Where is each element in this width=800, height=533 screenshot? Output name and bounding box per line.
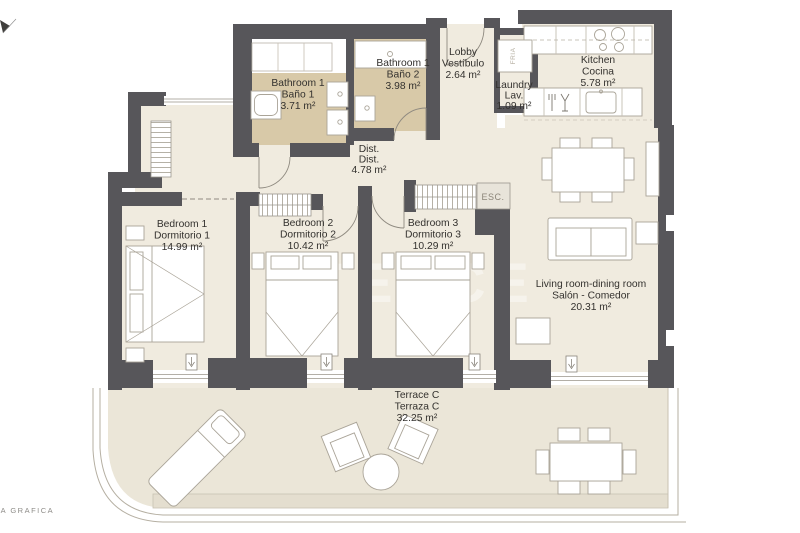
bedroom2-name-es: Dormitorio 2: [280, 230, 336, 241]
arrow-bedroom2: [321, 354, 332, 370]
floor-plan: TEKCE: [0, 0, 800, 533]
bathtub: [251, 91, 281, 119]
armchair-living: [516, 318, 550, 344]
bedroom2-terrace-window: [307, 370, 344, 383]
living-name-en: Living room-dining room: [536, 279, 646, 290]
toilet: [355, 96, 375, 121]
bedroom1-name-en: Bedroom 1: [157, 219, 208, 230]
kitchen-counter-bottom: [524, 88, 642, 116]
compass-fragment-icon: [0, 19, 16, 33]
bedroom2-name-en: Bedroom 2: [283, 218, 334, 229]
bathroom1-name-es: Baño 1: [282, 90, 315, 101]
bedroom2-label: Bedroom 2 Dormitorio 2 10.42 m²: [280, 218, 336, 252]
kitchen-name-en: Kitchen: [581, 55, 616, 66]
living-name-es: Salón - Comedor: [552, 291, 630, 302]
terrace-paving-strip: [153, 494, 668, 508]
hall-closet: [151, 121, 171, 177]
dist-name-en: Dist.: [359, 144, 380, 155]
bathroom2-name-en: Bathroom 1: [376, 58, 430, 69]
sofa: [548, 218, 632, 260]
lobby-area: 2.64 m²: [446, 70, 481, 81]
kitchen-name-es: Cocina: [582, 67, 614, 78]
laundry-name-es: Lav.: [505, 91, 524, 102]
bedroom3-name-en: Bedroom 3: [408, 218, 459, 229]
arrow-living: [566, 356, 577, 372]
bedroom3-terrace-window: [463, 370, 496, 383]
laundry-name-en: Laundry: [495, 80, 533, 91]
kitchen-area: 5.78 m²: [581, 78, 616, 89]
bedroom3-label: Bedroom 3 Dormitorio 3 10.29 m²: [405, 218, 461, 252]
floor-plan-page: TEKCE: [0, 0, 800, 533]
bedroom3-wardrobe: [415, 185, 476, 209]
bathroom1-area: 3.71 m²: [281, 101, 316, 112]
living-terrace-window: [551, 372, 648, 385]
terrace-name-es: Terraza C: [395, 402, 440, 413]
credit-text: LA GRAFICA: [0, 506, 54, 515]
dist-area: 4.78 m²: [352, 165, 387, 176]
terrace-round-table: [363, 454, 399, 490]
bedroom3-name-es: Dormitorio 3: [405, 230, 461, 241]
hall-window: [164, 96, 233, 105]
bedroom3-area: 10.29 m²: [413, 241, 454, 252]
stairs-label: ESC.: [481, 192, 504, 202]
terrace-area: 32.25 m²: [397, 413, 438, 424]
bedroom2-wardrobe: [259, 194, 311, 216]
stair-landing: ESC.: [477, 183, 510, 209]
bedroom3-bed: [382, 252, 484, 356]
bathroom1-name-en: Bathroom 1: [271, 78, 325, 89]
bedroom1-label: Bedroom 1 Dormitorio 1 14.99 m²: [154, 219, 210, 253]
terrace-label: Terrace C Terraza C 32.25 m²: [395, 390, 440, 424]
living-area: 20.31 m²: [571, 302, 612, 313]
bedroom1-terrace-window: [153, 370, 208, 383]
fridge-label: FRIA: [510, 47, 517, 64]
bedroom2-area: 10.42 m²: [288, 241, 329, 252]
terrace-name-en: Terrace C: [395, 390, 440, 401]
bathroom2-name-es: Baño 2: [387, 70, 420, 81]
arrow-bedroom1: [186, 354, 197, 370]
dist-name-es: Dist.: [359, 155, 380, 166]
tv-cabinet: [646, 142, 659, 196]
side-table: [636, 222, 658, 244]
laundry-area: 1.09 m²: [497, 101, 532, 112]
bedroom1-name-es: Dormitorio 1: [154, 231, 210, 242]
bathroom2-area: 3.98 m²: [386, 81, 421, 92]
bedroom1-area: 14.99 m²: [162, 242, 203, 253]
dining-table: [542, 138, 634, 202]
kitchen-label: Kitchen Cocina 5.78 m²: [581, 55, 616, 89]
lobby-name-es: Vestíbulo: [442, 59, 485, 70]
bathroom1-closet: [252, 43, 332, 71]
lobby-name-en: Lobby: [449, 47, 478, 58]
kitchen-counter-top: [524, 26, 652, 54]
arrow-bedroom3: [469, 354, 480, 370]
